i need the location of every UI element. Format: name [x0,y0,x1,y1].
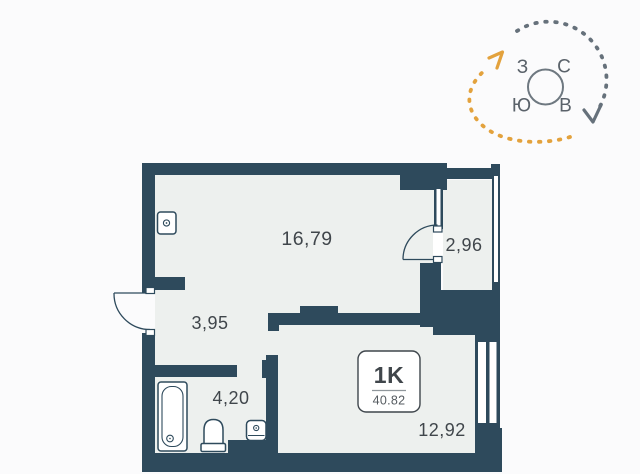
compass-letter-west: З [517,57,528,78]
room-area-label-bathroom: 4,20 [212,388,249,408]
wall-segment [228,440,272,453]
wall-segment [142,333,155,472]
wall-segment [266,355,278,453]
wall-segment [433,290,500,335]
bedroom-window [478,342,486,423]
room-area-label-living: 16,79 [281,228,332,250]
electric-panel-icon [158,212,177,234]
loggia-window [494,176,498,282]
floorplan-page: 16,79 2,96 3,95 4,20 12,92 1K 40.82 З С … [0,0,640,474]
badge-type-label: 1K [374,362,404,388]
wall-segment [300,306,338,314]
door-jamb [434,257,443,263]
room-area-label-hallway: 3,95 [191,313,228,333]
toilet-icon [201,420,226,452]
doorway-gap [433,229,443,259]
door-jamb [434,226,443,232]
wall-segment [400,163,447,190]
compass-letter-east: В [559,96,572,117]
wall-segment [420,263,441,310]
wall-segment [262,360,267,378]
floor-plan-canvas: 16,79 2,96 3,95 4,20 12,92 1K 40.82 З С … [0,0,640,474]
wall-segment [155,365,237,377]
wall-segment [142,453,502,472]
sink-icon [247,421,267,441]
apartment-badge: 1K 40.82 [358,351,420,412]
wall-segment [142,163,155,293]
room-area-label-bedroom: 12,92 [418,420,466,440]
wall-segment [268,313,433,325]
compass-letter-south: Ю [512,96,531,117]
badge-area-value: 40.82 [373,394,406,408]
compass-letter-north: С [557,57,571,78]
wall-segment [491,164,500,176]
bathtub-icon [158,382,187,451]
bedroom-window [490,342,497,423]
door-jamb [146,288,155,294]
wall-segment [445,168,498,179]
wall-segment [475,428,502,472]
partition-glass [437,189,441,229]
room-area-label-loggia: 2,96 [445,235,482,255]
door-jamb [146,330,155,336]
wall-segment [268,320,279,331]
